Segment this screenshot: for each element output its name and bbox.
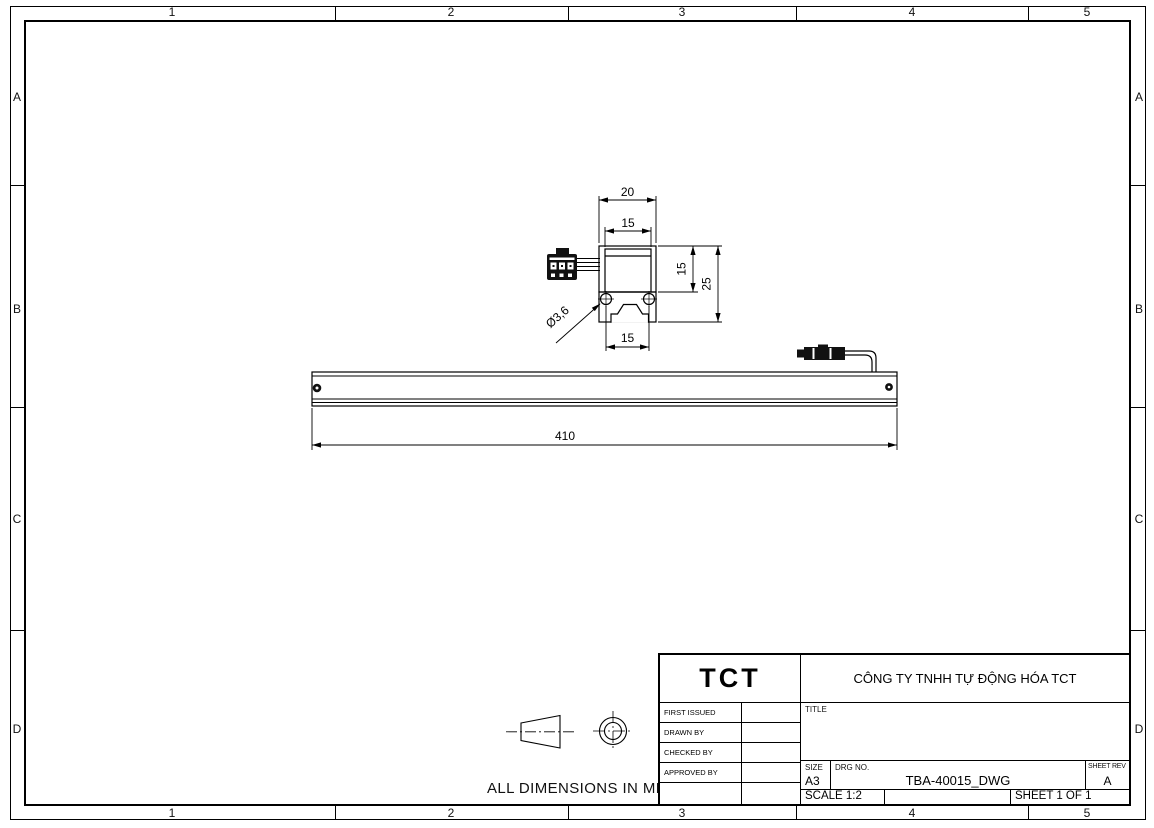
drg-no-cell: DRG NO. TBA-40015_DWG <box>831 761 1086 790</box>
dim-body-width: 15 <box>621 216 635 230</box>
approval-row-value <box>742 743 801 763</box>
sheet-size: A3 <box>801 774 830 788</box>
company-logo: TCT <box>660 655 801 703</box>
approval-row-value <box>742 763 801 783</box>
dim-body-height: 15 <box>675 262 689 276</box>
dim-overall-height: 25 <box>700 277 714 291</box>
approval-row-label <box>660 783 742 804</box>
dim-hole-diameter: Ø3,6 <box>543 303 572 331</box>
connector-wires <box>577 259 600 271</box>
scale-row-empty-cell <box>885 790 1011 804</box>
drawing-sheet: 1 2 3 4 5 1 2 3 4 5 A B C D A B C D <box>0 0 1154 828</box>
title-block: TCT CÔNG TY TNHH TỰ ĐỘNG HÓA TCT FIRST I… <box>658 653 1131 806</box>
cross-section-view <box>577 246 657 323</box>
company-name: CÔNG TY TNHH TỰ ĐỘNG HÓA TCT <box>801 655 1129 703</box>
approval-row-value <box>742 723 801 743</box>
units-note: ALL DIMENSIONS IN MM <box>487 780 669 797</box>
drawing-number: TBA-40015_DWG <box>831 773 1085 788</box>
end-screws <box>313 383 893 392</box>
approval-row-value <box>742 783 801 804</box>
sheet-count: SHEET 1 OF 1 <box>1011 790 1129 804</box>
sheet-scale: SCALE 1:2 <box>801 790 885 804</box>
dim-base-width: 20 <box>621 185 635 199</box>
front-view <box>312 372 897 406</box>
size-label: SIZE <box>801 761 830 772</box>
sheet-rev-cell: SHEET REV A <box>1086 761 1129 790</box>
connector-plug-icon <box>547 248 577 280</box>
projection-symbol-icon <box>506 711 633 751</box>
size-cell: SIZE A3 <box>801 761 831 790</box>
approval-row-value <box>742 703 801 723</box>
title-label: TITLE <box>801 703 1129 714</box>
cable-connector-icon <box>797 345 876 372</box>
dim-hole-spacing: 15 <box>621 331 635 345</box>
drg-no-label: DRG NO. <box>831 761 1085 772</box>
title-cell: TITLE <box>801 703 1129 761</box>
sheet-rev-label: SHEET REV <box>1086 761 1129 770</box>
approval-row-label: APPROVED BY <box>660 763 742 783</box>
approval-row-label: CHECKED BY <box>660 743 742 763</box>
sheet-revision: A <box>1086 774 1129 788</box>
dimension-lines <box>312 196 897 450</box>
approval-row-label: DRAWN BY <box>660 723 742 743</box>
dim-overall-length: 410 <box>555 429 575 443</box>
approval-row-label: FIRST ISSUED <box>660 703 742 723</box>
